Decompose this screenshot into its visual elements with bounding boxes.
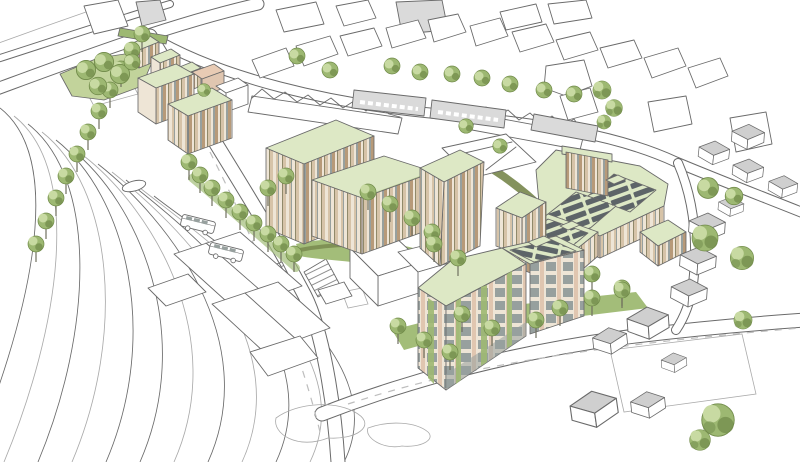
garden-tree [444,66,460,82]
garden-tree [198,84,211,97]
park-tree [124,54,140,70]
facade [566,152,608,196]
street-tree [28,236,44,262]
hip-roof-house [568,388,619,431]
mature-tree [734,311,752,329]
street-tree [91,103,107,129]
context-building-gray [136,0,166,26]
garden-tree [536,82,552,98]
garden-tree [474,70,490,86]
hedge-tree [725,187,743,205]
context-house [336,0,376,26]
bottom-road-casing [322,320,800,414]
paved-plaza-large [610,334,756,412]
context-house [340,28,382,56]
forecourt-landscape [367,423,430,447]
mature-tree [730,246,753,269]
context-house [648,96,692,132]
road-edge-line [0,12,86,44]
context-house [252,48,294,78]
garden-tree [322,62,338,78]
hip-roof-house [661,352,688,373]
railway-track [84,156,193,462]
courtyard-tree [584,266,600,292]
mature-tree [606,100,623,117]
masterplan-canvas [0,0,800,462]
context-house [470,18,508,46]
hip-roof-house [731,157,764,184]
garden-tree [502,76,518,92]
masterplan-illustration [0,0,800,462]
hedge-tree [698,178,719,199]
context-house [548,0,592,24]
street-tree [58,168,74,194]
garden-tree [384,58,400,74]
context-house [276,2,324,32]
mature-tree [692,225,718,251]
mature-tree [593,81,611,99]
garden-tree [566,86,582,102]
street-tree [48,190,64,216]
railway-track [0,108,36,462]
context-house [386,20,426,48]
hip-roof-house [670,278,708,308]
street-tree [38,213,54,239]
hip-roof-house [630,390,667,420]
green-facade-climber [507,271,512,348]
context-house [512,24,554,52]
context-house [688,58,728,88]
mature-tree [690,430,711,451]
park-tree [94,52,113,71]
mature-tree [702,404,735,437]
street-tree [69,146,85,172]
garden-tree [412,64,428,80]
context-house [556,32,598,60]
station-canopy [148,274,206,306]
railway-track [56,140,133,462]
bottom-road [322,320,800,414]
street-tree [80,124,96,150]
trackside-structure [121,178,147,194]
context-house [600,40,642,68]
mature-tree [597,115,611,129]
railway-track [4,116,57,462]
garden-tree [289,48,305,64]
garden-tree [459,119,473,133]
park-tree [89,77,107,95]
central-block [266,120,434,254]
hip-roof-house [697,139,730,166]
park-tree [76,60,95,79]
garden-tree [493,139,507,153]
context-house [644,48,686,78]
